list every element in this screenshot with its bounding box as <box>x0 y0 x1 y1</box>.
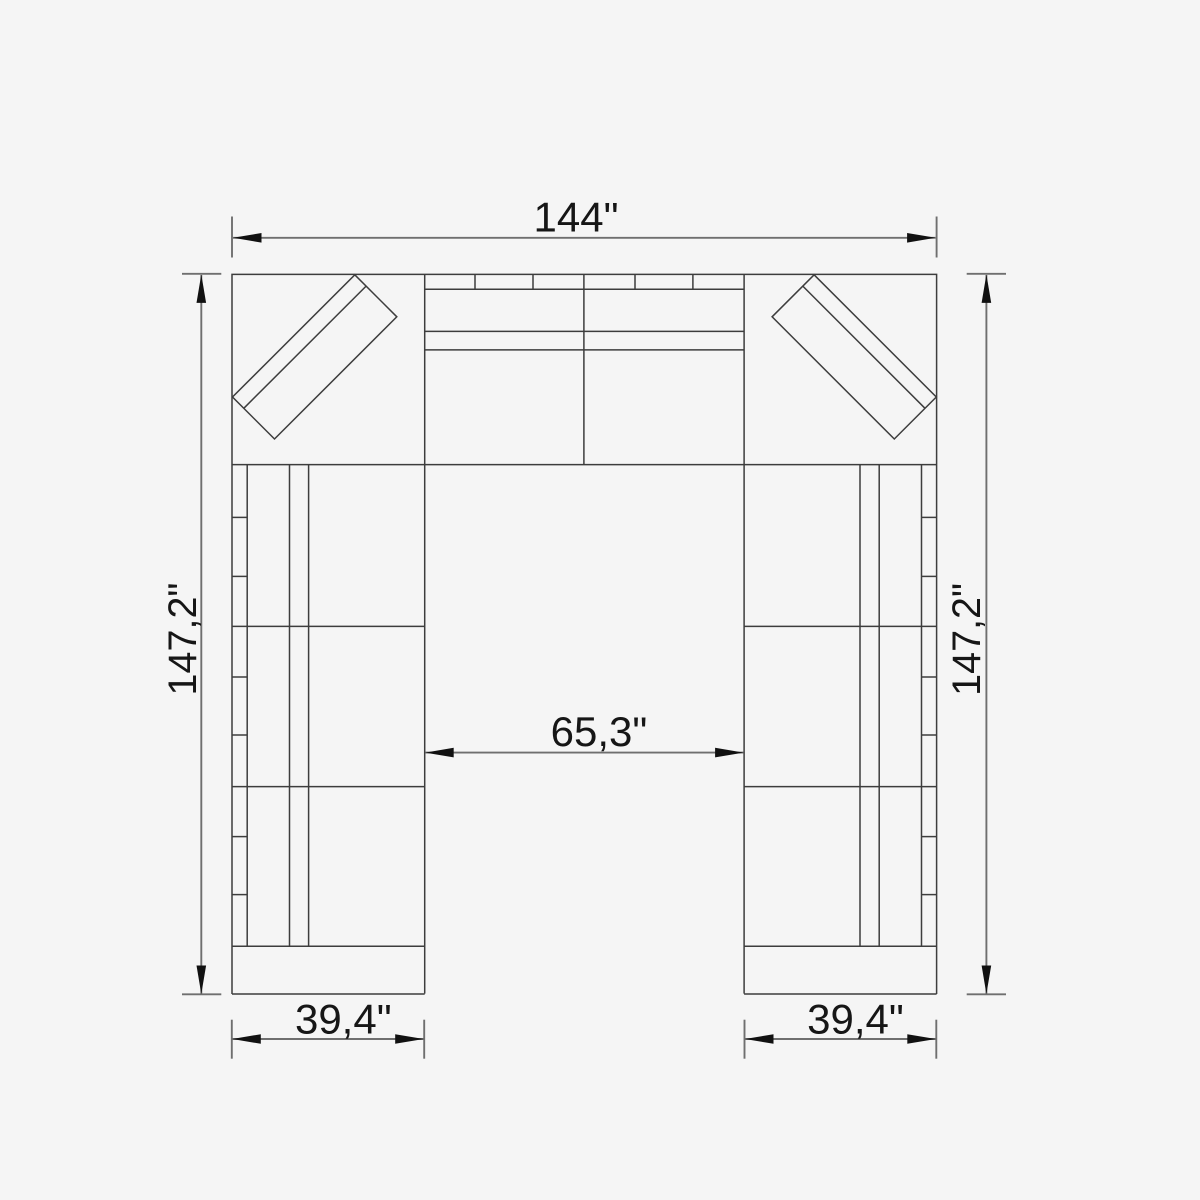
svg-text:147,2": 147,2" <box>945 583 989 696</box>
svg-text:39,4": 39,4" <box>295 996 392 1043</box>
svg-text:147,2": 147,2" <box>161 583 205 696</box>
svg-text:144": 144" <box>534 193 619 240</box>
svg-text:65,3": 65,3" <box>551 708 648 755</box>
svg-text:39,4": 39,4" <box>807 996 904 1043</box>
